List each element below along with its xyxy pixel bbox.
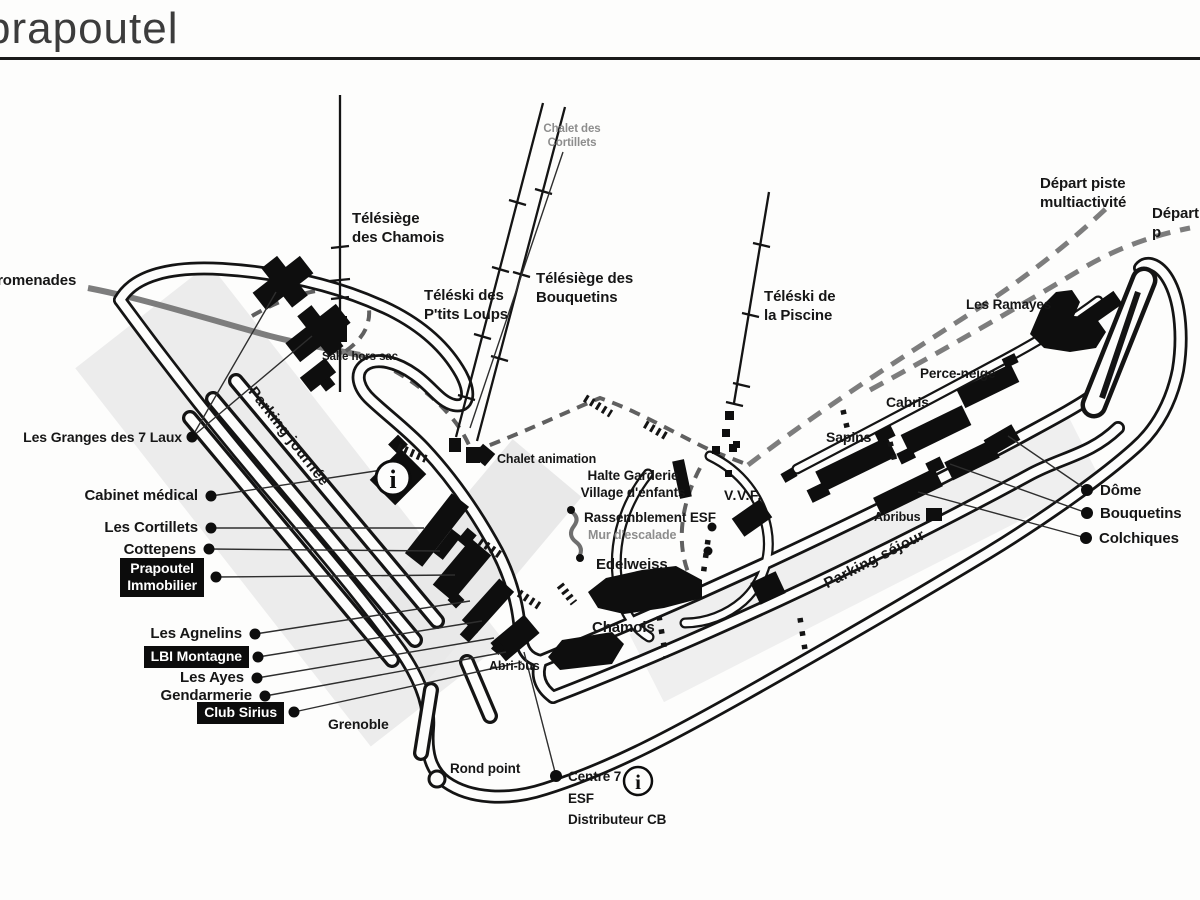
label-les-granges-des-7-laux: Les Granges des 7 Laux [23,429,182,447]
label-depart-piste: Départ p [1152,205,1200,243]
label-cabinet-medical: Cabinet médical [84,487,198,506]
label-dome: Dôme [1100,482,1141,501]
label-colchiques: Colchiques [1099,530,1179,549]
label-rond-point: Rond point [450,761,520,778]
label-chalet-animation: Chalet animation [497,452,596,468]
label-les-ramayes: Les Ramayes [966,297,1051,314]
label-bouquetins: Bouquetins [1100,505,1182,524]
label-cottepens: Cottepens [124,541,196,560]
label-teleski-des-ptits-loups: Téléski des P'tits Loups [424,287,508,325]
label-chalet-des-cortillets: Chalet des Cortillets [543,122,600,151]
label-sapins: Sapins [826,429,871,447]
label-prapoutel-immobilier: Prapoutel Immobilier [120,558,204,597]
label-cabris: Cabris [886,394,929,412]
label-abribus: Abribus [874,510,921,526]
climbing-wall [567,506,584,562]
lift-teleski-piscine [722,192,770,452]
page-title: prapoutel [0,4,178,54]
roundabout-icon [429,771,445,787]
info-icon: i [376,461,410,495]
title-divider [0,57,1200,60]
label-telesiege-des-chamois: Télésiège des Chamois [352,210,444,248]
map-page: i i prapoutel Chalet des Cortillets Télé… [0,0,1200,900]
svg-text:i: i [389,465,396,494]
label-les-cortillets: Les Cortillets [104,519,198,538]
label-perce-neige: Perce-neige [920,366,995,383]
label-edelweiss: Edelweiss [596,556,668,575]
label-les-ayes: Les Ayes [180,669,244,688]
label-grenoble: Grenoble [328,716,389,734]
label-salle-hors-sac: Salle hors sac [322,350,398,364]
label-promenades: promenades [0,272,76,291]
label-halte-garderie: Halte Garderie Village d'enfants [581,468,686,502]
label-abri-bus: Abri-bus [489,659,540,675]
label-telesiege-des-bouquetins: Télésiège des Bouquetins [536,270,633,308]
label-rassemblement-esf: Rassemblement ESF [584,510,716,527]
label-club-sirius: Club Sirius [197,702,284,724]
label-teleski-de-la-piscine: Téléski de la Piscine [764,288,836,326]
label-centre-7-esf: Centre 7 ESF Distributeur CB [568,766,666,831]
label-lbi-montagne: LBI Montagne [144,646,249,668]
label-mur-descalade: Mur d'escalade [588,528,676,544]
label-chamois: Chamois [592,619,655,638]
label-vvf: V.V.F. [724,487,762,505]
label-les-agnelins: Les Agnelins [150,625,242,644]
